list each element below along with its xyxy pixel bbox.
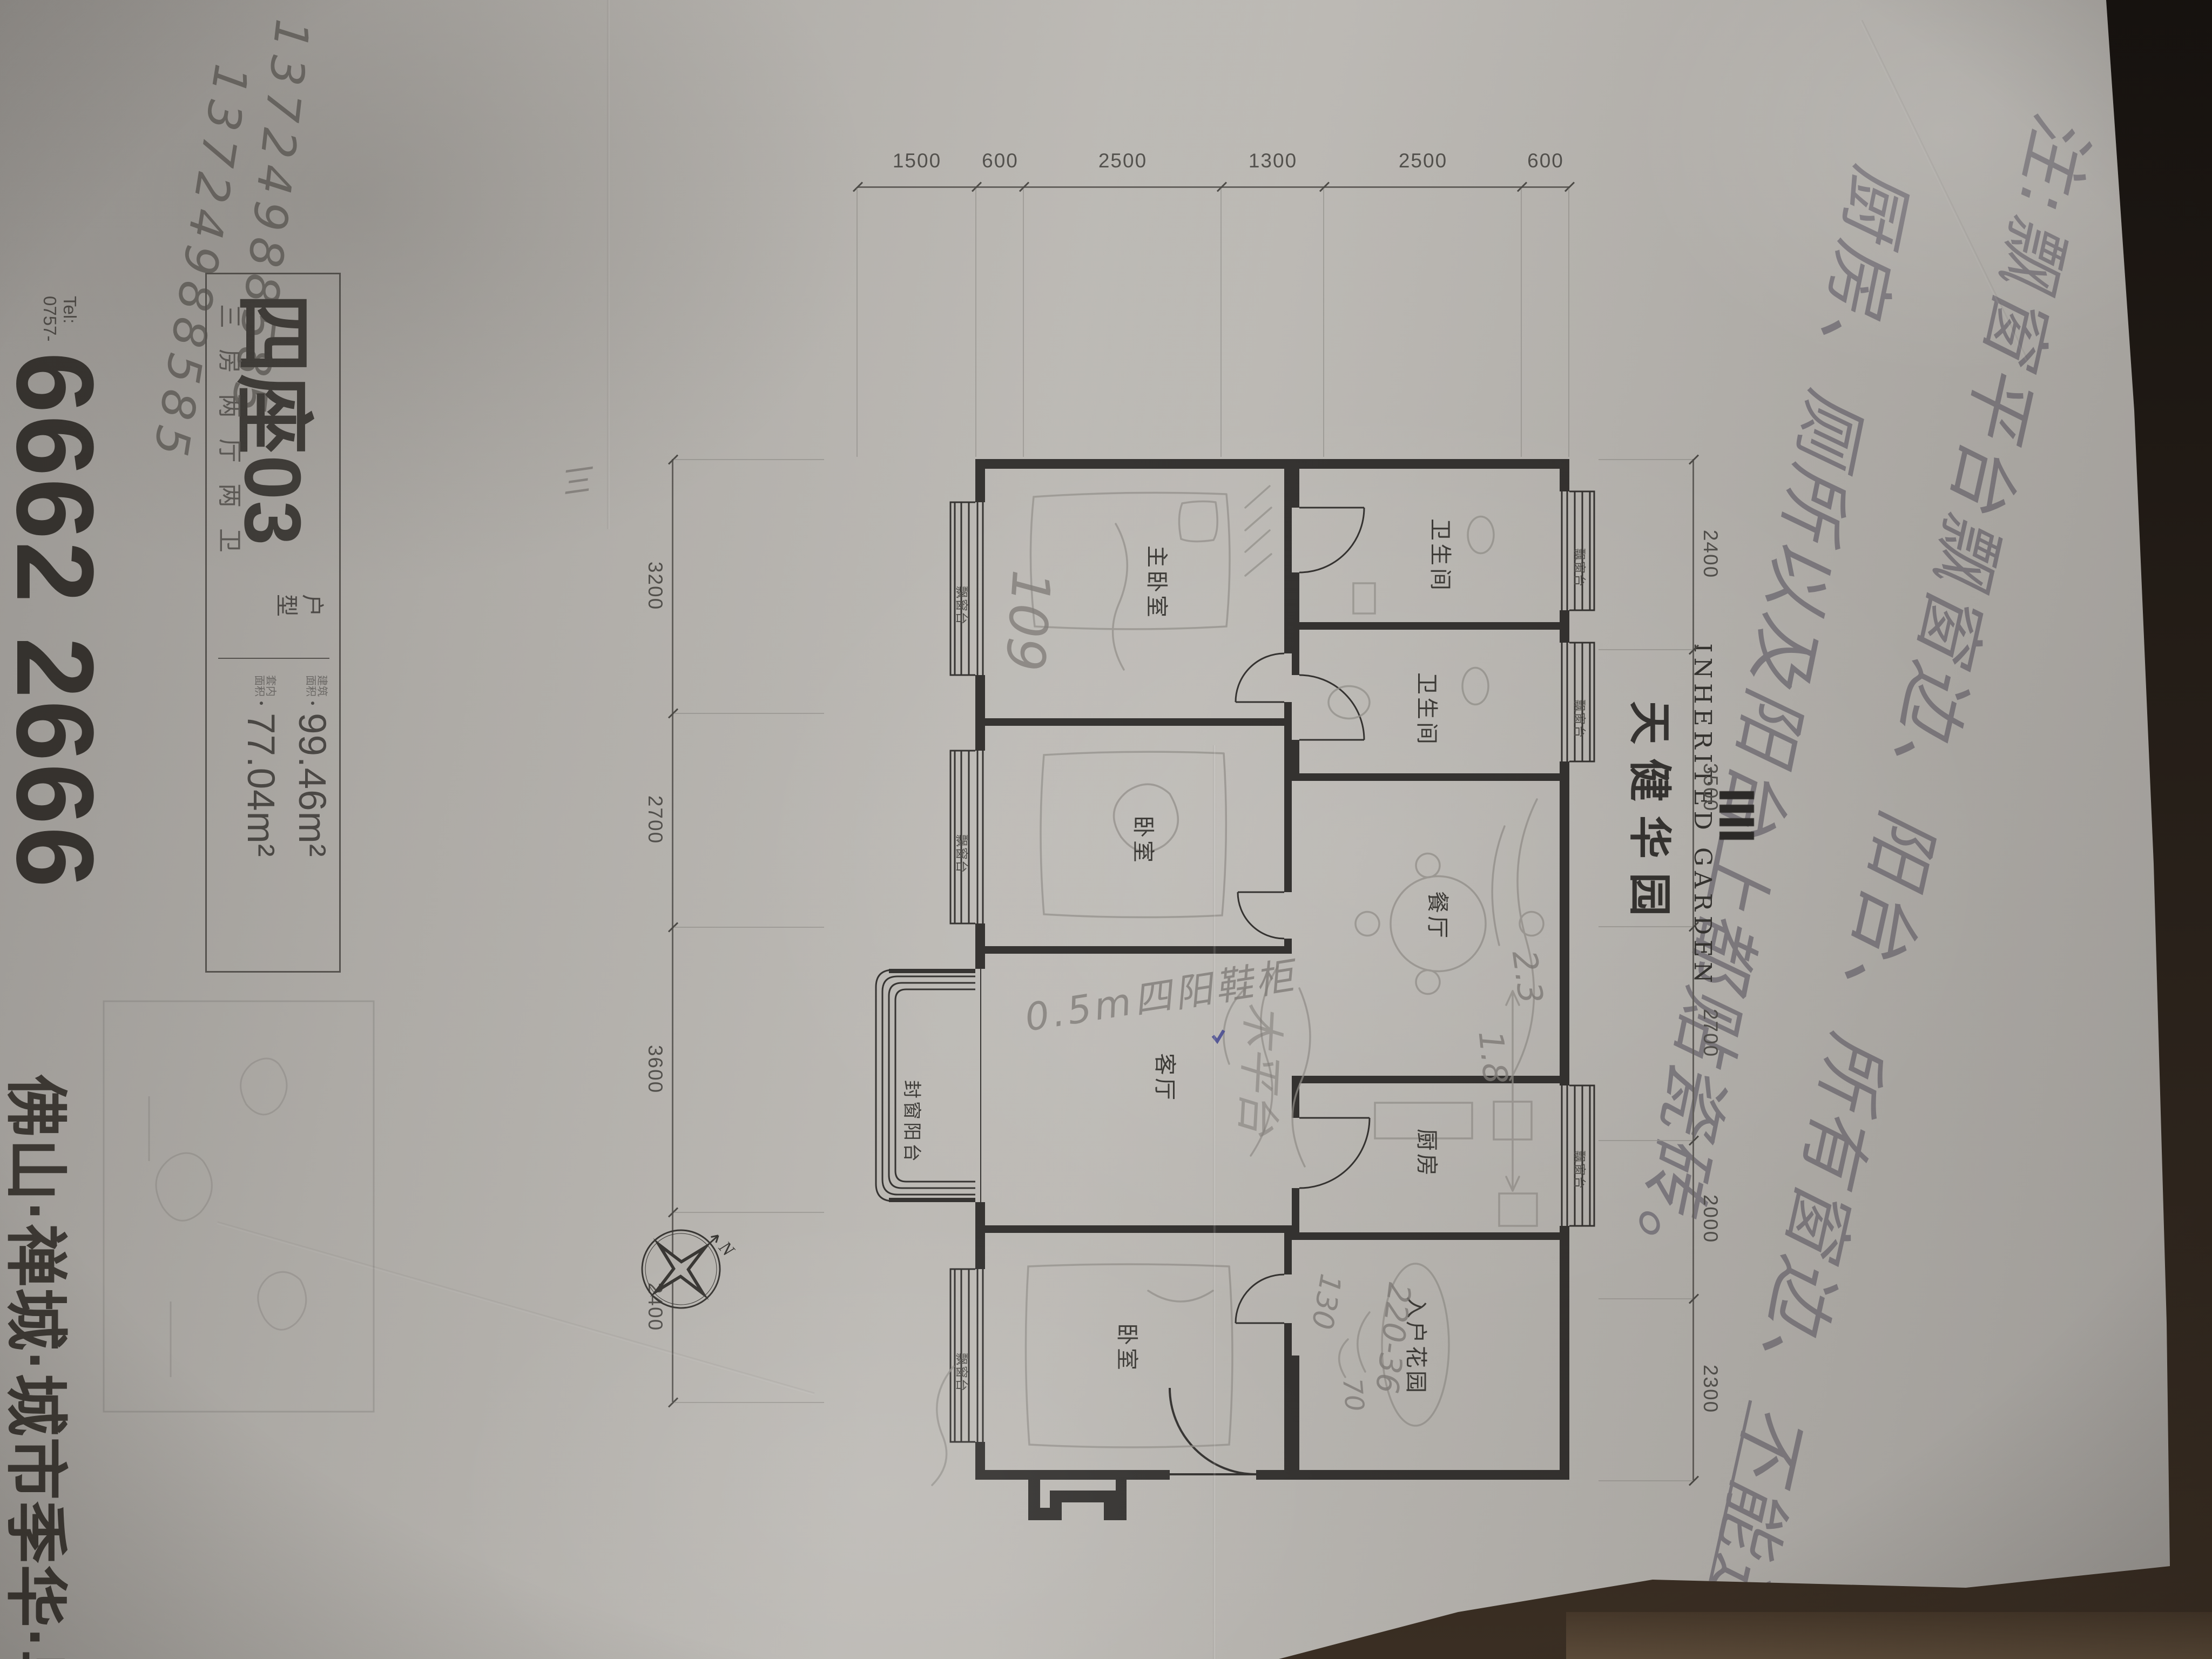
area2-label: 套内 面积 <box>253 675 276 697</box>
dim-left-3: 1300 <box>1249 150 1297 172</box>
logo-bars-icon <box>1718 637 1754 994</box>
room-label-bedroom-2: 卧室 <box>1129 815 1162 865</box>
area2-label-line1: 套内 <box>265 675 276 697</box>
dim-ext <box>674 1402 824 1403</box>
flyer-upright-content: 注:飘窗平台飘窗边、阳台、所有窗边、不能过道。 厨房、厕所以及阳台上都贴瓷砖。 … <box>0 0 2212 1659</box>
room-label-bathroom-1: 卫生间 <box>1426 518 1459 593</box>
dim-ext <box>975 188 976 457</box>
unit-suffix-char-2: 型 <box>273 594 299 617</box>
dim-left-1: 600 <box>1527 150 1564 172</box>
bay-window-label: 飘窗台 <box>1572 1150 1590 1189</box>
bay-window-label: 飘窗台 <box>954 834 972 873</box>
logo-chinese-name: 天健华园 <box>1622 637 1684 994</box>
sales-phone-number: 6662 2666 <box>0 352 118 890</box>
dim-top-2: 3500 <box>1699 763 1722 812</box>
room-label-dining: 餐厅 <box>1424 891 1456 941</box>
table-edge-highlight <box>1566 1612 2212 1659</box>
pencil-annotation-109: 109 <box>993 568 1062 673</box>
dim-ext <box>1568 188 1569 457</box>
pencil-annotation-1-8: 1.8 <box>1471 1029 1515 1086</box>
pencil-annotation-70: 70 <box>1337 1377 1370 1413</box>
dim-bottom-3: 3600 <box>644 1045 666 1094</box>
area2-label-line2: 面积 <box>253 675 265 697</box>
room-label-living: 客厅 <box>1151 1053 1183 1103</box>
dim-ext <box>1599 1298 1692 1299</box>
blue-pen-mark <box>1213 1030 1224 1041</box>
unit-title-block: 四座03 户 型 三房两厅两卫 建筑 面积 ● 99.46m² 套内 面积 ● <box>205 273 341 973</box>
dim-left-6: 1500 <box>893 150 941 172</box>
dim-ext <box>674 713 824 714</box>
bay-window-label: 飘窗台 <box>954 1353 972 1392</box>
room-label-bedroom-3: 卧室 <box>1113 1323 1145 1373</box>
tel-label-block: Tel: 0757- <box>40 296 80 341</box>
dim-top-5: 2300 <box>1699 1365 1722 1413</box>
dim-ext <box>1323 188 1324 457</box>
dim-left-2: 2500 <box>1399 150 1447 172</box>
dim-ext <box>1599 1140 1692 1141</box>
unit-name-suffix: 户 型 <box>273 594 325 617</box>
dim-bottom-1: 3200 <box>644 562 666 610</box>
area1-value: 99.46m² <box>290 713 334 857</box>
dim-ext <box>674 459 824 460</box>
unit-suffix-char-1: 户 <box>299 594 325 617</box>
dim-ext <box>857 188 858 457</box>
dim-top-4: 2000 <box>1699 1195 1722 1243</box>
dim-ext <box>674 927 824 928</box>
dim-left-5: 600 <box>982 150 1019 172</box>
area1-dot-icon: ● <box>309 701 318 705</box>
dim-chain-top-line <box>1692 459 1694 1480</box>
project-address: 佛山·禅城·城市季华·早海路 <box>0 1075 86 1659</box>
compass-icon: N <box>630 1218 732 1320</box>
tel-label: Tel: <box>60 296 80 341</box>
tel-area-code: 0757- <box>40 296 60 341</box>
bay-window-label: 飘窗台 <box>1572 699 1590 738</box>
pencil-annotation-2-3: 2.3 <box>1505 948 1551 1006</box>
room-label-bathroom-2: 卫生间 <box>1413 672 1445 747</box>
room-label-balcony: 封窗阳台 <box>900 1080 927 1164</box>
site-map-sketch <box>84 999 376 1458</box>
dim-top-3: 2700 <box>1699 1009 1722 1057</box>
area1-label: 建筑 面积 <box>305 675 327 697</box>
paper-sheet: 注:飘窗平台飘窗边、阳台、所有窗边、不能过道。 厨房、厕所以及阳台上都贴瓷砖。 … <box>0 0 2212 1659</box>
dim-ext <box>1599 1480 1692 1481</box>
dim-ext <box>1599 649 1692 650</box>
room-label-kitchen: 厨房 <box>1413 1129 1445 1178</box>
dim-left-4: 2500 <box>1098 150 1147 172</box>
pencil-annotation-platform: 木平台 <box>1228 1001 1299 1137</box>
title-divider <box>218 658 329 659</box>
dim-ext <box>674 1212 824 1213</box>
dim-ext <box>1023 188 1024 457</box>
unit-layout-text: 三房两厅两卫 <box>214 304 249 573</box>
dim-chain-left-line <box>858 186 1569 188</box>
area2-value: 77.04m² <box>239 713 282 857</box>
area1-label-line2: 面积 <box>305 675 316 697</box>
dim-ext <box>1220 188 1222 457</box>
dim-ext <box>1599 459 1692 460</box>
dim-ext <box>1521 188 1522 457</box>
bay-window-label: 飘窗台 <box>954 586 972 625</box>
pencil-mark-san: 三 <box>563 457 600 507</box>
bay-window-label: 飘窗台 <box>1572 548 1590 587</box>
dim-top-1: 2400 <box>1699 530 1722 578</box>
area1-label-line1: 建筑 <box>316 675 327 697</box>
photo-of-floorplan-flyer: 注:飘窗平台飘窗边、阳台、所有窗边、不能过道。 厨房、厕所以及阳台上都贴瓷砖。 … <box>0 0 2212 1659</box>
dim-ext <box>1599 926 1692 927</box>
project-logo: INHERITED GARDEN 天健华园 <box>1622 637 1754 994</box>
dim-bottom-2: 2700 <box>644 795 666 844</box>
room-label-master-bedroom: 主卧室 <box>1143 545 1175 620</box>
area2-dot-icon: ● <box>258 701 266 705</box>
